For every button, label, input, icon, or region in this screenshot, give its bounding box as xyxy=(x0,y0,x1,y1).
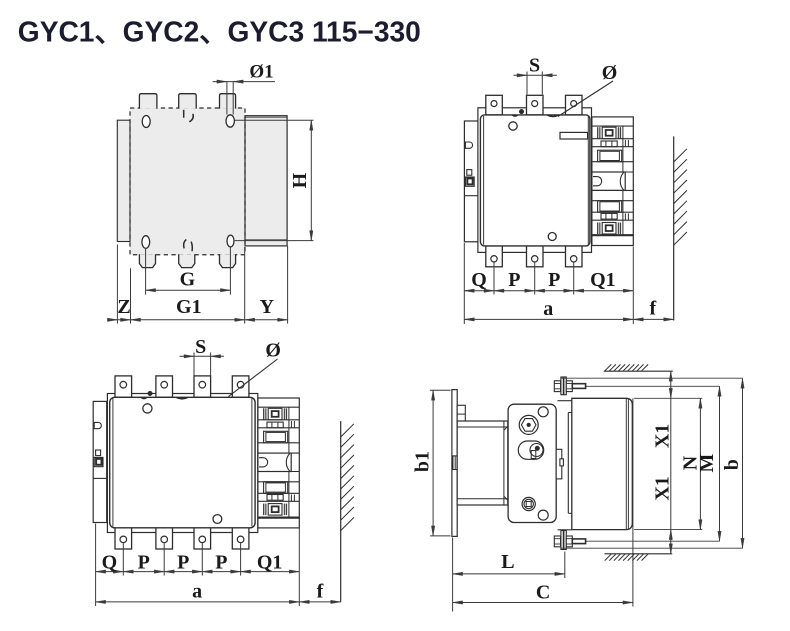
svg-text:C: C xyxy=(536,582,550,604)
svg-text:H: H xyxy=(289,172,311,188)
svg-text:P: P xyxy=(508,269,520,291)
svg-text:a: a xyxy=(192,580,202,602)
svg-text:Z: Z xyxy=(117,296,130,318)
svg-text:P: P xyxy=(548,269,560,291)
svg-text:Q1: Q1 xyxy=(257,551,283,573)
svg-text:Y: Y xyxy=(260,296,275,318)
svg-text:P: P xyxy=(138,551,150,573)
svg-text:Q1: Q1 xyxy=(590,269,616,291)
svg-text:S: S xyxy=(195,336,206,358)
svg-text:Q: Q xyxy=(102,551,118,573)
svg-text:M: M xyxy=(696,453,718,472)
svg-text:Ø: Ø xyxy=(602,62,618,84)
svg-text:G: G xyxy=(180,268,196,290)
svg-text:Ø: Ø xyxy=(265,340,281,362)
svg-text:f: f xyxy=(317,581,324,603)
svg-text:Ø1: Ø1 xyxy=(249,62,273,83)
svg-text:P: P xyxy=(215,551,227,573)
svg-text:GYC1、GYC2、GYC3 115−330: GYC1、GYC2、GYC3 115−330 xyxy=(18,17,421,49)
svg-text:a: a xyxy=(543,298,553,320)
svg-text:P: P xyxy=(177,551,189,573)
svg-text:X1: X1 xyxy=(651,476,673,500)
svg-text:b1: b1 xyxy=(412,451,434,472)
svg-text:S: S xyxy=(529,54,540,76)
svg-text:f: f xyxy=(649,297,656,319)
svg-text:G1: G1 xyxy=(176,296,202,318)
svg-text:X1: X1 xyxy=(651,424,673,448)
svg-text:Q: Q xyxy=(471,269,487,291)
svg-text:L: L xyxy=(501,551,514,573)
svg-text:b: b xyxy=(721,459,743,470)
